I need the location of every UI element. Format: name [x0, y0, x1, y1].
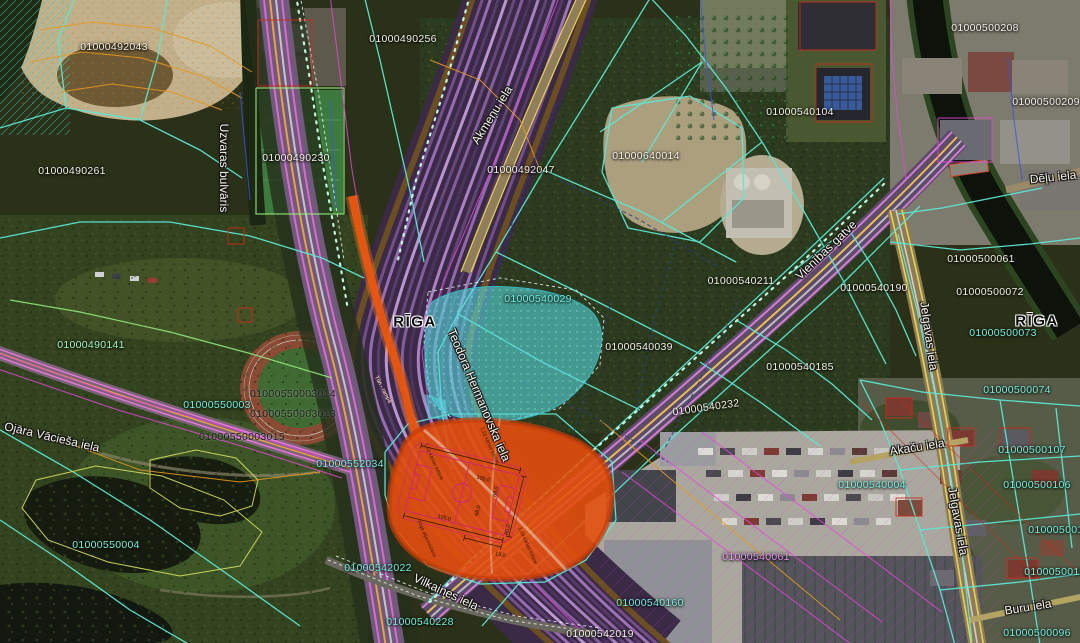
parcel-label: 01000492043: [80, 42, 148, 53]
annotation-label: 1.šā kārtas tribīne: [423, 443, 444, 481]
street-label: Buru iela: [1004, 597, 1053, 616]
city-label: RĪGA: [1015, 314, 1059, 329]
street-label: Teodora Hermanovska iela: [446, 327, 513, 463]
parcel-label: 01000500061: [947, 254, 1015, 265]
parcel-label: 01000542022: [344, 563, 412, 574]
parcel-label: 01000550003: [183, 400, 251, 411]
parcel-label: 01000500106: [1003, 480, 1071, 491]
dimension-label: 13.0: [494, 552, 506, 560]
parcel-label: 01000490141: [57, 340, 125, 351]
parcel-label: 01000500107: [998, 445, 1066, 456]
annotation-label: žoga atjaunošana: [416, 520, 437, 558]
parcel-label: 01000500072: [956, 287, 1024, 298]
parcel-label: 01000540185: [766, 362, 834, 373]
parcel-label: 01000500074: [983, 385, 1051, 396]
parcel-label: 01000540004: [838, 480, 906, 491]
parcel-label: 01000500101: [1028, 525, 1080, 536]
parcel-label: 01000500209: [1012, 97, 1080, 108]
parcel-label: 01000500101: [1024, 567, 1080, 578]
street-label: Ojāra Vācieša iela: [3, 420, 101, 454]
street-label: Jelgavas iela: [918, 301, 940, 371]
parcel-label: 01000540039: [605, 342, 673, 353]
parcel-label: 01000550003015: [199, 432, 285, 443]
route-label: Tūn - rampa: [373, 375, 392, 404]
parcel-label: 01000490261: [38, 166, 106, 177]
parcel-label: 01000492047: [487, 165, 555, 176]
parcel-label: 01000550003013: [250, 409, 336, 420]
parcel-label: 01000500096: [1003, 628, 1071, 639]
street-label: Uzvaras bulvāris: [218, 124, 230, 213]
parcel-label: 01000500208: [951, 23, 1019, 34]
parcel-label: 01000490256: [369, 34, 437, 45]
parcel-label: 01000540160: [616, 598, 684, 609]
annotation-label: 1.šā kārtas tribīne: [517, 527, 538, 565]
map-labels-layer: 0100049204301000490261010004902300100049…: [0, 0, 1080, 643]
parcel-label: 01000540190: [840, 283, 908, 294]
parcel-label: 01000540232: [672, 398, 740, 418]
city-label: RĪGA: [393, 315, 437, 330]
street-label: Vienības gatve: [793, 218, 858, 282]
parcel-label: 01000550003014: [250, 389, 336, 400]
parcel-label: 01000490230: [262, 153, 330, 164]
parcel-label: 01000550004: [72, 540, 140, 551]
street-label: Akaču iela: [889, 437, 946, 458]
dimension-label: 68.0: [493, 486, 501, 498]
dimension-label: 60.0: [505, 524, 513, 536]
dimension-label: 105.0: [437, 515, 452, 524]
parcel-label: 01000540228: [386, 617, 454, 628]
dimension-label: 105.0: [476, 476, 491, 485]
parcel-label: 01000540061: [722, 552, 790, 563]
parcel-label: 01000540029: [504, 294, 572, 305]
parcel-label: 01000540211: [708, 276, 775, 287]
parcel-label: 01000542019: [566, 629, 634, 640]
parcel-label: 01000640014: [612, 151, 680, 162]
map-viewport[interactable]: 0100049204301000490261010004902300100049…: [0, 0, 1080, 643]
street-label: Jelgavas iela: [946, 486, 970, 556]
parcel-label: 01000552034: [316, 459, 384, 470]
street-label: Akmeņu iela: [469, 84, 514, 146]
dimension-label: 68.0: [475, 505, 483, 517]
street-label: Dēļu iela: [1029, 169, 1077, 186]
parcel-label: 01000540104: [766, 107, 834, 118]
street-label: Vilkaines iela: [412, 572, 480, 612]
